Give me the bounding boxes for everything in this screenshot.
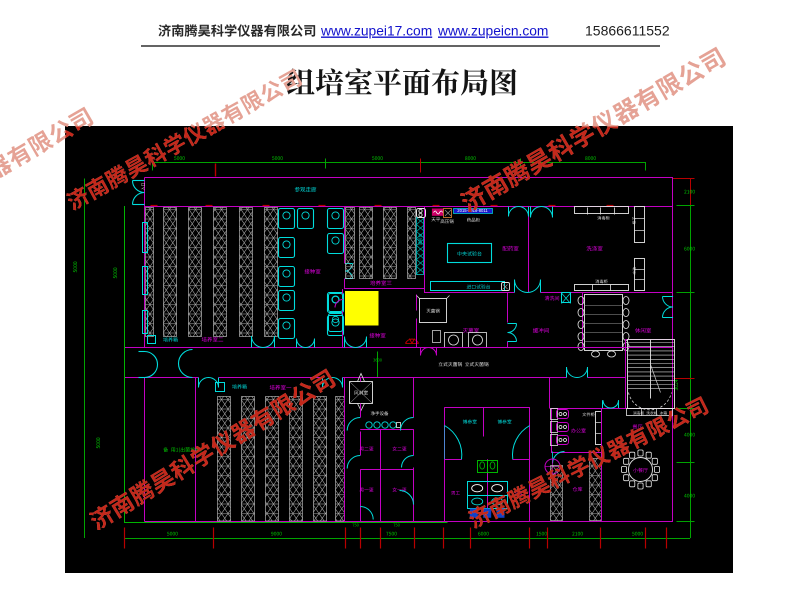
svg-text:2015-8918-8011: 2015-8918-8011 bbox=[457, 208, 488, 213]
svg-text:15866611552: 15866611552 bbox=[585, 23, 670, 39]
svg-text:www.zupeicn.com: www.zupeicn.com bbox=[437, 24, 548, 39]
svg-text:www.zupei17.com: www.zupei17.com bbox=[320, 24, 432, 39]
